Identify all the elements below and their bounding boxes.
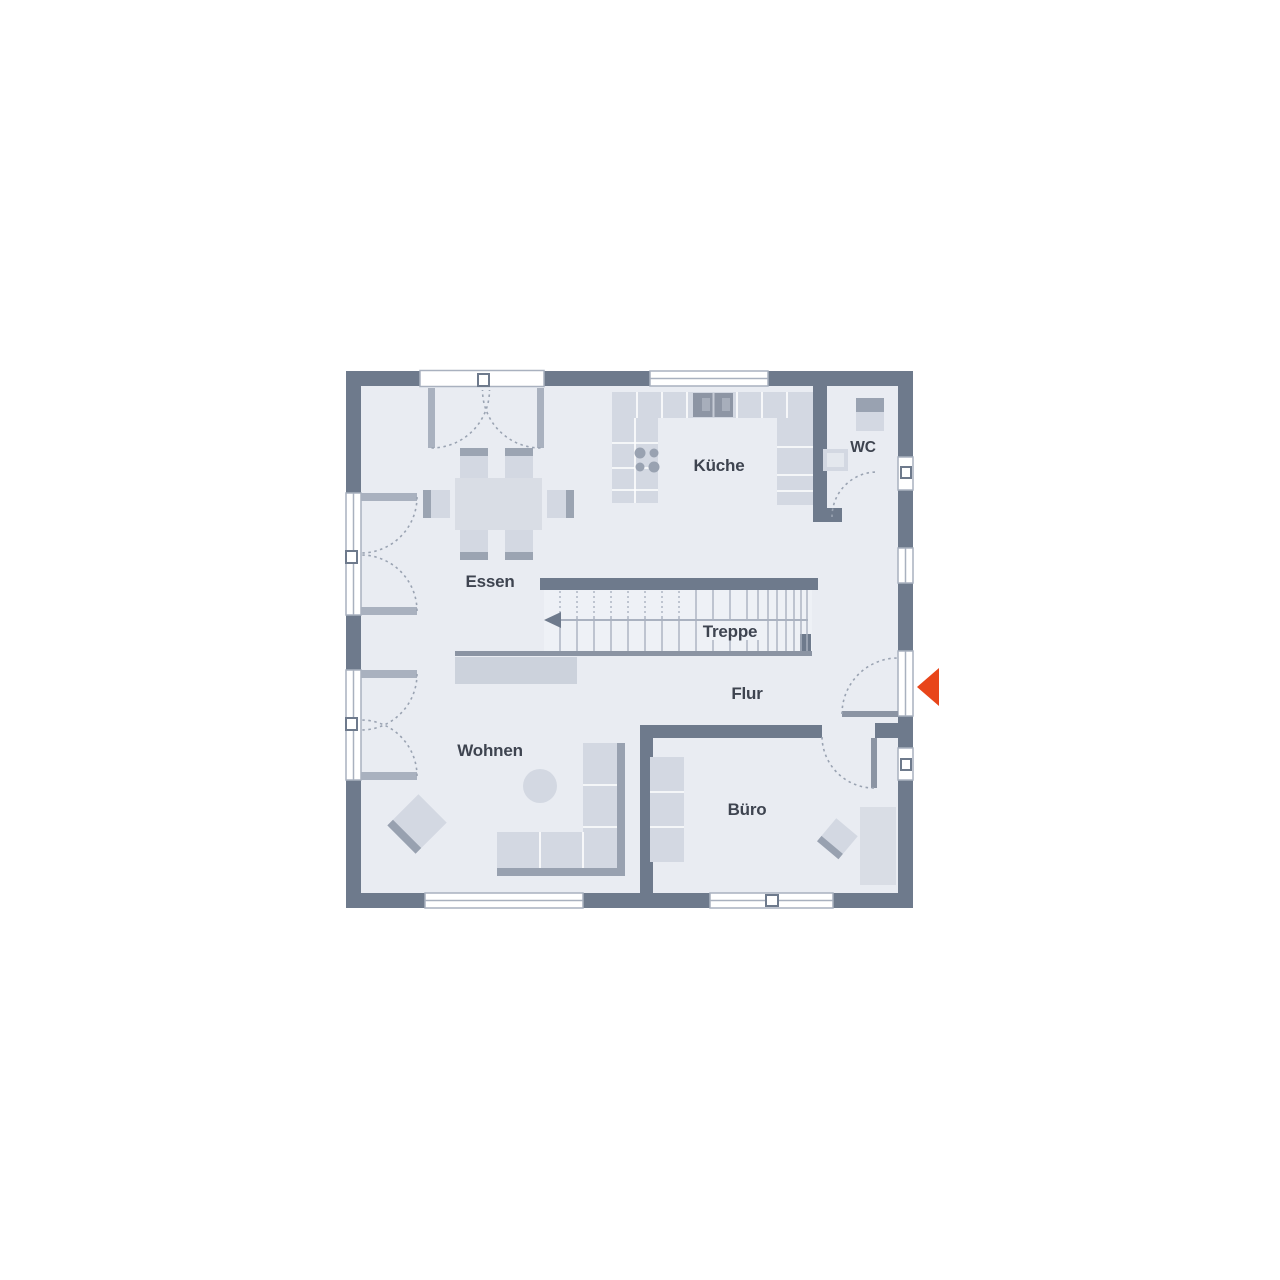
window-wc-right	[898, 457, 913, 490]
entrance-arrow-icon	[917, 668, 939, 706]
room-label-wc: WC	[850, 439, 875, 456]
dining-chair	[423, 490, 450, 518]
coffee-table	[523, 769, 557, 803]
door-handle	[478, 374, 489, 386]
french-door-essen	[346, 493, 361, 615]
window-handle	[766, 895, 778, 906]
window-handle	[901, 467, 911, 478]
wall-wc-stub	[827, 508, 842, 522]
door-leaf	[842, 711, 898, 717]
terrace-door-top	[420, 371, 544, 387]
door-leaf	[871, 738, 877, 788]
dining-chair	[505, 530, 533, 560]
room-label-flur: Flur	[731, 684, 763, 703]
dining-chair	[460, 530, 488, 560]
office-shelf	[650, 757, 684, 862]
dining-chair	[505, 448, 533, 478]
dining-chair	[460, 448, 488, 478]
door-leaf	[537, 388, 544, 448]
door-handle	[346, 718, 357, 730]
stair-bottom-rail	[455, 651, 812, 656]
window-buero-bottom	[710, 893, 833, 908]
wc-sink	[856, 398, 884, 431]
dining-chair	[547, 490, 574, 518]
window-kitchen-top	[650, 371, 768, 386]
entrance-door	[898, 651, 913, 716]
room-label-essen: Essen	[465, 572, 514, 591]
sideboard	[455, 657, 577, 684]
floor-plan: Essen Küche WC Treppe Flur Wohnen Büro	[0, 0, 1280, 1280]
room-label-buero: Büro	[728, 800, 767, 819]
room-label-treppe: Treppe	[703, 622, 758, 641]
office-desk	[860, 807, 896, 885]
door-handle	[346, 551, 357, 563]
wc-toilet	[823, 449, 848, 471]
wall-entrance-block	[875, 723, 898, 738]
room-label-wohnen: Wohnen	[457, 741, 523, 760]
wall-buero-top	[640, 725, 822, 738]
room-label-kueche: Küche	[694, 456, 745, 475]
window-handle	[901, 759, 911, 770]
kitchen-sink	[693, 393, 733, 417]
window-lower-right	[898, 748, 913, 780]
window-flur-right	[898, 548, 913, 583]
door-leaf	[361, 670, 417, 678]
dining-table	[455, 478, 542, 530]
door-leaf	[361, 607, 417, 615]
wall-stair-top	[540, 578, 818, 590]
window-wohnen-bottom	[425, 893, 583, 908]
french-door-wohnen	[346, 670, 361, 780]
door-leaf	[428, 388, 435, 448]
door-leaf	[361, 493, 417, 501]
door-leaf	[361, 772, 417, 780]
